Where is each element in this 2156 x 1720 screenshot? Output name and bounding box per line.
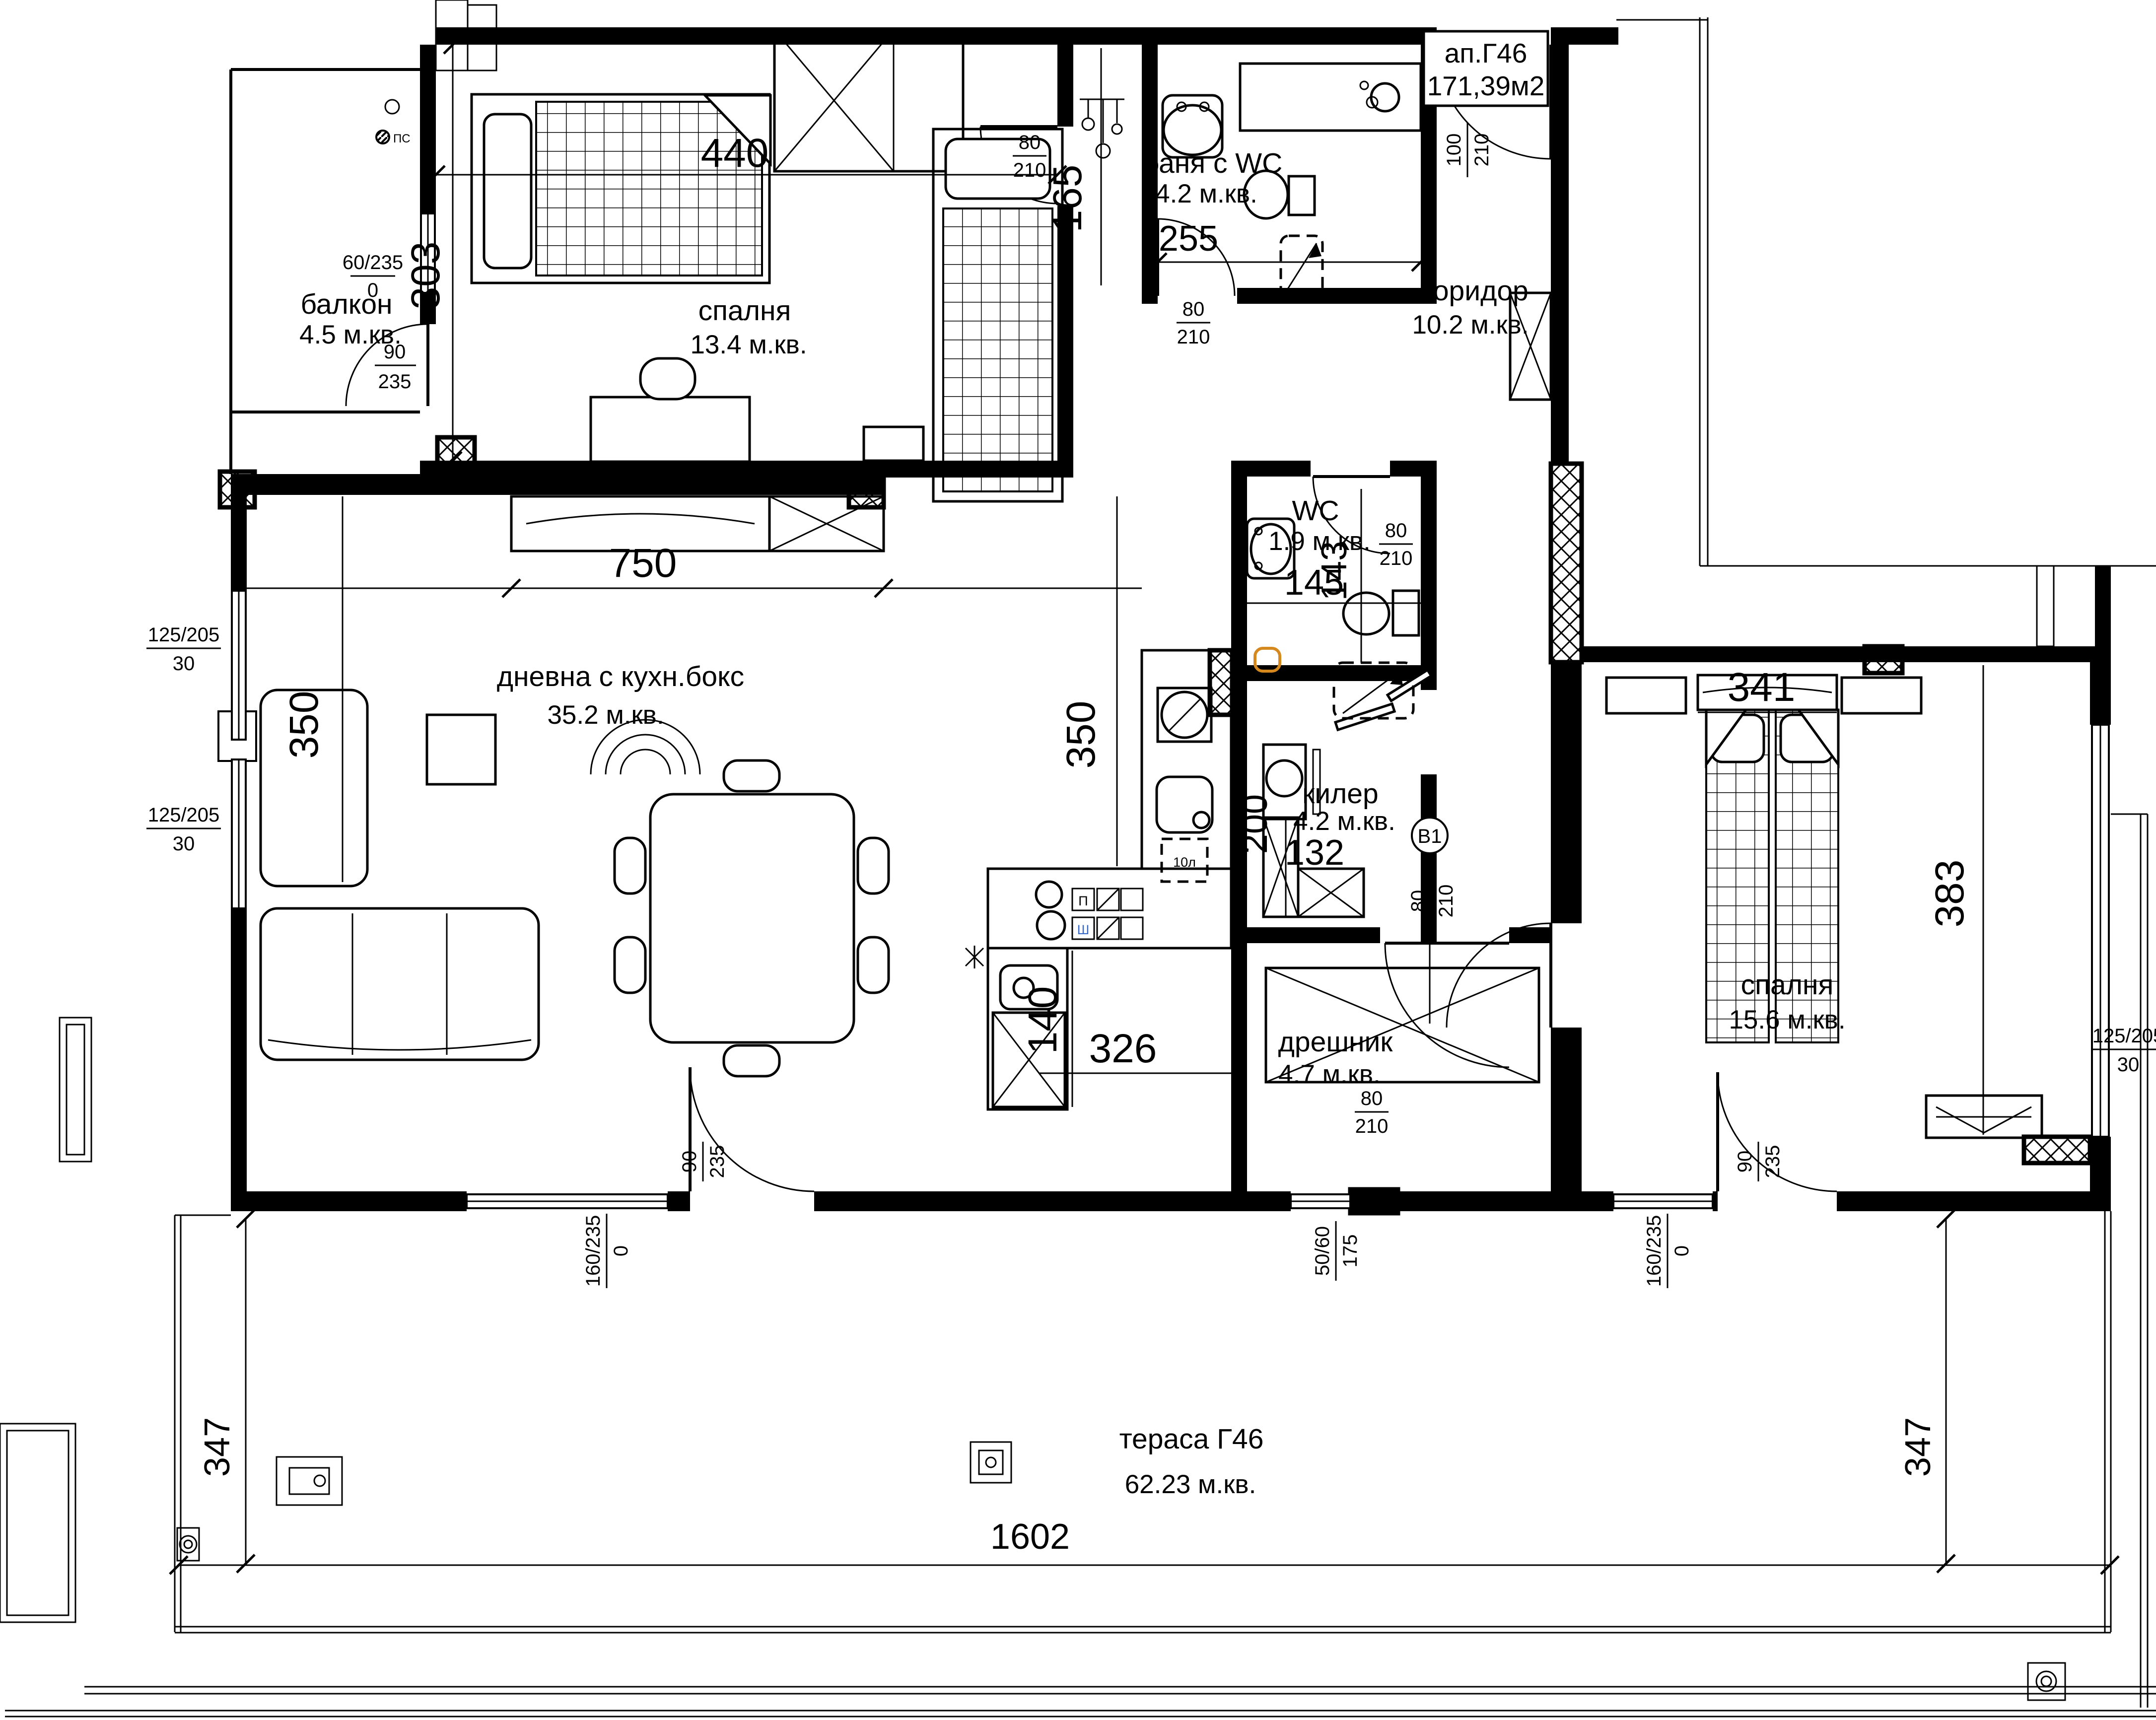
svg-text:0: 0 [610,1245,632,1256]
bath-shower [1281,236,1322,296]
room-area-living: 35.2 м.кв. [547,700,664,730]
room-name-dressing: дрешник [1278,1026,1393,1058]
svg-text:235: 235 [706,1145,728,1178]
label-door-dressing: 80 210 [1355,1088,1389,1137]
svg-text:90: 90 [1734,1151,1756,1173]
dim-303: 303 [403,242,448,310]
dim-350-kitchen: 350 [1058,701,1104,769]
pantry-cabinet-horizontal [1298,869,1364,917]
ps-marker: ПС [376,100,411,145]
floor-plan-svg: ПС ап.Г46 171,39м2 балкон [0,0,2156,1720]
dim-383: 383 [1927,860,1972,928]
label-door-terrace1: 90 235 [679,1142,728,1181]
boiler-label: 10л [1173,855,1196,870]
dim-132: 132 [1285,833,1344,873]
svg-text:175: 175 [1339,1235,1361,1268]
wc-toilet [1393,591,1419,635]
label-win-left1: 125/205 30 [146,624,221,675]
dim-440: 440 [701,131,769,176]
svg-text:30: 30 [173,833,195,855]
svg-text:210: 210 [1013,159,1046,181]
room-area-bedroom1: 13.4 м.кв. [690,330,807,359]
bedroom2-furniture [1606,675,2042,1138]
room-name-balcony: балкон [300,288,392,320]
svg-text:125/205: 125/205 [148,804,220,826]
svg-text:80: 80 [1361,1088,1383,1109]
svg-text:80: 80 [1019,132,1041,153]
room-area-corridor: 10.2 м.кв. [1412,310,1529,340]
tv-console [511,496,884,551]
svg-text:235: 235 [1762,1145,1784,1178]
b1-label: B1 [1418,826,1442,847]
kitchen-sink [1157,777,1212,832]
dressing-door [1385,943,1509,1067]
room-name-bath: баня с WC [1143,147,1283,179]
ps-label: ПС [393,132,411,145]
terrace-fixtures [177,1442,2065,1700]
bath-counter [1240,64,1421,131]
window-bottom-2 [1613,1194,1713,1208]
dim-200: 200 [1235,794,1275,854]
svg-text:60/235: 60/235 [343,252,403,274]
svg-text:80: 80 [1385,520,1407,542]
dim-1602: 1602 [990,1517,1070,1557]
room-name-wc: WC [1292,495,1339,527]
floor-plan-page: ПС ап.Г46 171,39м2 балкон [0,0,2156,1720]
room-area-terrace: 62.23 м.кв. [1125,1470,1256,1499]
label-door-bath: 80 210 [1177,298,1210,348]
room-name-bedroom1: спалня [698,295,791,327]
svg-text:125/205: 125/205 [148,624,220,646]
wardrobe [774,30,963,171]
window-small [1291,1194,1350,1208]
dim-750: 750 [609,541,677,586]
dim-140: 140 [1020,986,1065,1054]
lamp-symbol [966,946,983,968]
svg-text:160/235: 160/235 [1643,1215,1665,1287]
svg-text:210: 210 [1177,326,1210,348]
nightstand [1842,678,1921,713]
hob-burner [1037,911,1065,939]
living-furniture [261,496,889,1076]
desk [591,397,750,462]
dim-347-right: 347 [1898,1417,1938,1477]
bedroom1-furniture [472,30,1062,501]
apartment-id: ап.Г46 [1445,38,1528,69]
dim-347-left: 347 [198,1417,237,1477]
dim-165: 165 [1045,165,1090,233]
dim-255: 255 [1159,219,1218,259]
svg-text:80: 80 [1407,890,1429,912]
room-area-bath: 4.2 м.кв. [1155,179,1257,208]
svg-text:50/60: 50/60 [1312,1226,1333,1276]
svg-text:30: 30 [2117,1054,2140,1076]
cabinet-label-top: П [1078,894,1088,908]
label-door-entrance: 100 210 [1443,123,1493,177]
desk-chair [640,358,695,399]
window-bottom-1 [467,1194,668,1208]
label-win-bottom1: 160/235 0 [582,1214,632,1288]
label-win-small: 50/60 175 [1312,1221,1361,1281]
svg-text:210: 210 [1435,885,1457,918]
room-name-terrace: тераса Г46 [1119,1423,1264,1455]
room-name-bedroom2: спалня [1741,969,1834,1001]
dim-326: 326 [1089,1026,1157,1071]
svg-text:160/235: 160/235 [582,1215,604,1287]
kitchen-counter-horizontal [988,869,1231,948]
label-win-bottom2: 160/235 0 [1643,1214,1693,1288]
window-left-1 [232,591,246,740]
label-door-terrace2: 90 235 [1734,1142,1784,1181]
corridor-furniture [1510,293,1551,400]
room-name-corridor: коридор [1420,275,1528,307]
interior-walls [1057,45,1551,1191]
room-area-pantry: 4.2 м.кв. [1293,807,1395,836]
dining-set [615,760,889,1076]
title-block: ап.Г46 171,39м2 [1424,31,1548,106]
svg-text:80: 80 [1182,298,1205,320]
dim-350-sofa: 350 [281,691,327,759]
svg-text:30: 30 [173,653,195,675]
nightstand [1606,678,1686,713]
dim-143: 143 [1315,541,1354,601]
dim-341: 341 [1728,665,1796,710]
window-right [2092,725,2109,1137]
svg-text:235: 235 [378,371,412,393]
svg-text:100: 100 [1443,134,1465,167]
svg-text:0: 0 [1671,1245,1693,1256]
nightstand [864,427,923,461]
svg-text:0: 0 [367,279,378,301]
room-name-living: дневна с кухн.бокс [497,661,744,692]
svg-text:90: 90 [384,341,406,363]
hob-burner [1036,882,1062,907]
coat-hooks [1080,99,1124,158]
svg-text:210: 210 [1471,134,1493,167]
window-left-2 [232,759,246,908]
room-area-bedroom2: 15.6 м.кв. [1729,1005,1845,1034]
cabinet-label-bottom: Ш [1077,922,1090,937]
apartment-area: 171,39м2 [1427,70,1545,101]
svg-text:125/205: 125/205 [2092,1025,2156,1047]
label-win-left2: 125/205 30 [146,804,221,855]
svg-text:210: 210 [1355,1115,1389,1137]
room-area-dressing: 4.7 м.кв. [1278,1060,1381,1089]
label-door-wc: 80 210 [1379,520,1413,569]
svg-text:210: 210 [1380,548,1413,569]
room-name-pantry: килер [1302,778,1378,810]
coffee-table [427,715,495,784]
svg-text:90: 90 [679,1151,700,1173]
